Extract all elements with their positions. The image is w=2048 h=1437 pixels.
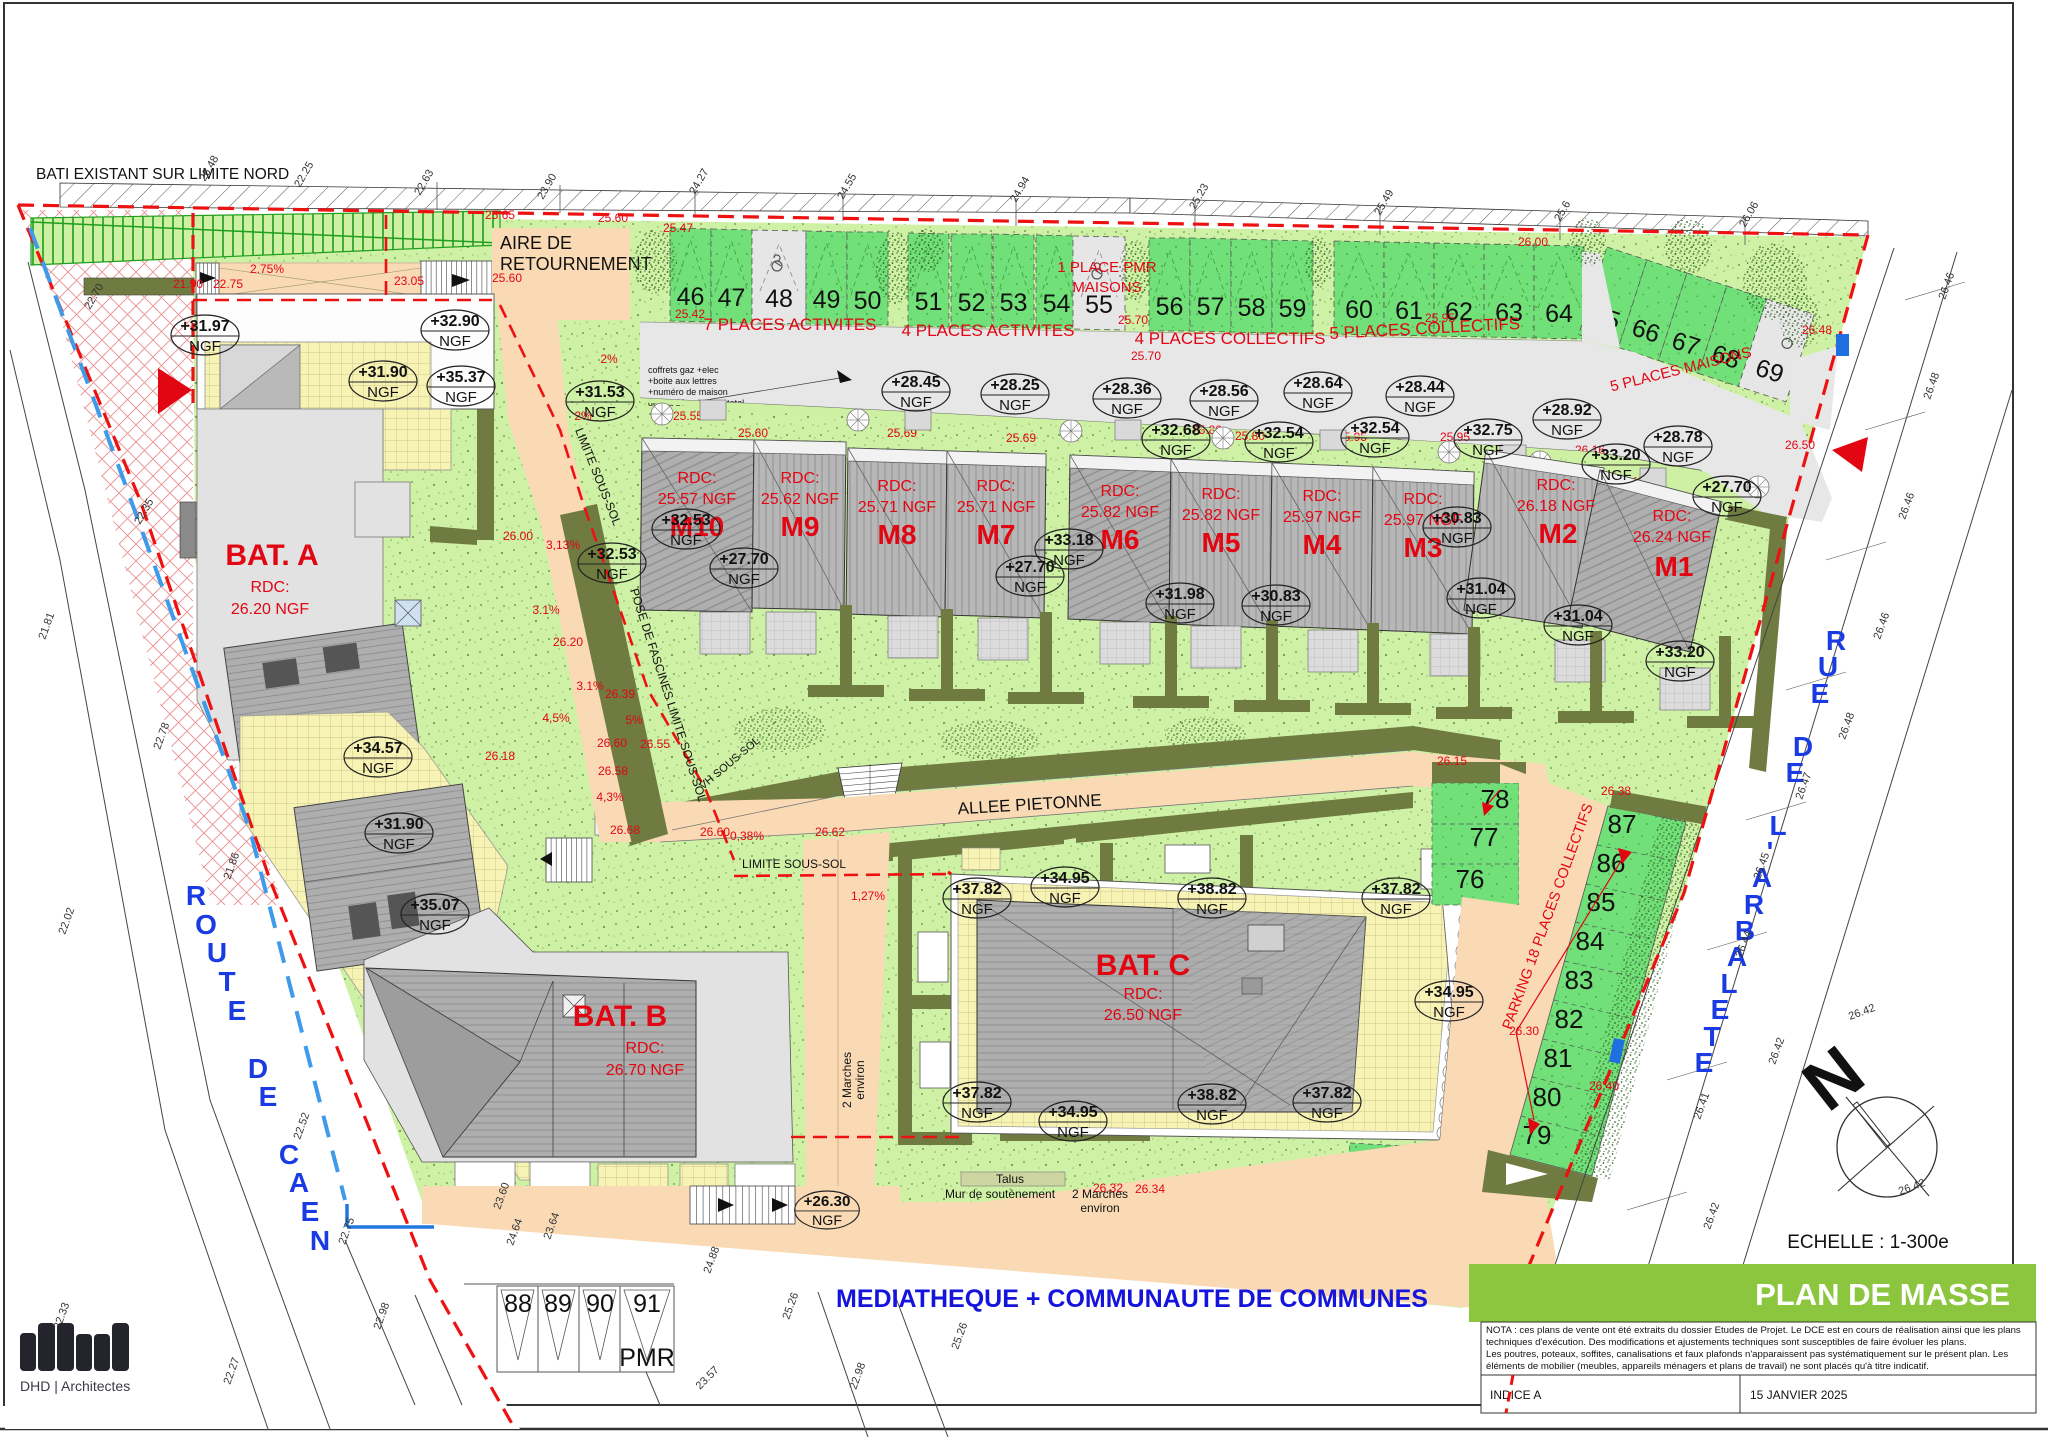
svg-text:NGF: NGF: [1433, 1004, 1465, 1021]
svg-text:NGF: NGF: [445, 389, 477, 406]
svg-text:+28.36: +28.36: [1102, 381, 1151, 398]
svg-text:NGF: NGF: [1302, 395, 1334, 412]
svg-text:RDC:: RDC:: [1201, 486, 1240, 503]
svg-text:64: 64: [1545, 300, 1573, 328]
svg-text:26.20 NGF: 26.20 NGF: [231, 601, 309, 618]
svg-text:48: 48: [765, 285, 793, 313]
svg-text:25.82 NGF: 25.82 NGF: [1081, 504, 1159, 521]
svg-text:RDC:: RDC:: [1123, 986, 1162, 1003]
svg-text:NGF: NGF: [1260, 608, 1292, 625]
svg-text:NGF: NGF: [812, 1213, 842, 1229]
svg-text:NGF: NGF: [1562, 628, 1594, 645]
svg-text:BAT. B: BAT. B: [573, 1000, 667, 1033]
svg-text:26.15: 26.15: [1437, 754, 1467, 768]
svg-text:NGF: NGF: [1049, 890, 1081, 907]
svg-text:25.57 NGF: 25.57 NGF: [658, 491, 736, 508]
svg-text:BAT. C: BAT. C: [1096, 949, 1190, 982]
svg-text:NGF: NGF: [1465, 601, 1497, 618]
svg-text:Talus: Talus: [996, 1172, 1024, 1186]
svg-text:26.24 NGF: 26.24 NGF: [1633, 529, 1711, 546]
svg-text:26.55: 26.55: [640, 737, 670, 751]
svg-text:+27.70: +27.70: [1702, 479, 1751, 496]
svg-text:3,13%: 3,13%: [546, 538, 580, 552]
svg-text:PMR: PMR: [619, 1344, 675, 1372]
svg-text:52: 52: [958, 289, 986, 317]
svg-text:NGF: NGF: [362, 760, 394, 777]
svg-text:+28.64: +28.64: [1293, 375, 1342, 392]
svg-text:techniques d'exécution. Des mo: techniques d'exécution. Des modification…: [1486, 1337, 1967, 1348]
svg-text:RDC:: RDC:: [1302, 488, 1341, 505]
svg-text:3.1%: 3.1%: [576, 679, 604, 693]
svg-text:25.70: 25.70: [1118, 313, 1148, 327]
svg-text:+34.57: +34.57: [353, 740, 402, 757]
svg-text:51: 51: [915, 288, 943, 316]
svg-text:M2: M2: [1539, 518, 1578, 549]
svg-text:+34.95: +34.95: [1048, 1104, 1097, 1121]
svg-text:+31.97: +31.97: [180, 318, 229, 335]
svg-text:N: N: [310, 1225, 330, 1256]
svg-text:25.60: 25.60: [738, 426, 768, 440]
svg-text:+28.56: +28.56: [1199, 383, 1248, 400]
svg-text:77: 77: [1470, 822, 1499, 852]
svg-text:INDICE A: INDICE A: [1490, 1388, 1541, 1402]
svg-text:2.75%: 2.75%: [250, 262, 284, 276]
svg-text:D: D: [248, 1053, 268, 1084]
svg-text:4,3%: 4,3%: [596, 790, 624, 804]
svg-text:+34.95: +34.95: [1424, 984, 1473, 1001]
svg-text:23.05: 23.05: [394, 274, 424, 288]
svg-text:M7: M7: [977, 519, 1016, 550]
svg-text:25.60: 25.60: [492, 271, 522, 285]
svg-text:+boite aux lettres: +boite aux lettres: [648, 376, 717, 386]
svg-text:25.97 NGF: 25.97 NGF: [1283, 509, 1361, 526]
svg-text:NGF: NGF: [1164, 606, 1196, 623]
svg-text:BAT. A: BAT. A: [225, 539, 318, 572]
svg-text:NGF: NGF: [1441, 530, 1473, 547]
svg-text:7 PLACES ACTIVITES: 7 PLACES ACTIVITES: [704, 315, 877, 334]
svg-text:BATI EXISTANT SUR LIMITE NORD: BATI EXISTANT SUR LIMITE NORD: [36, 166, 289, 183]
svg-text:25.69: 25.69: [1006, 431, 1036, 445]
svg-text:4 PLACES ACTIVITES: 4 PLACES ACTIVITES: [902, 321, 1075, 340]
svg-text:environ: environ: [1080, 1201, 1119, 1215]
svg-text:M6: M6: [1101, 524, 1140, 555]
svg-text:NGF: NGF: [1057, 1124, 1089, 1141]
svg-text:E: E: [301, 1196, 320, 1227]
svg-text:MEDIATHEQUE + COMMUNAUTE DE CO: MEDIATHEQUE + COMMUNAUTE DE COMMUNES: [836, 1285, 1428, 1313]
svg-text:NGF: NGF: [1160, 442, 1192, 459]
svg-text:26.18 NGF: 26.18 NGF: [1517, 498, 1595, 515]
svg-text:Les poutres, poteaux, soffites: Les poutres, poteaux, soffites, canalisa…: [1486, 1349, 2008, 1360]
svg-text:NGF: NGF: [596, 566, 628, 583]
svg-text:2 Marches: 2 Marches: [1072, 1187, 1128, 1201]
svg-text:NGF: NGF: [584, 404, 616, 421]
svg-text:RDC:: RDC:: [780, 470, 819, 487]
svg-text:NGF: NGF: [1600, 467, 1632, 484]
svg-text:+32.53: +32.53: [661, 512, 710, 529]
svg-text:+33.18: +33.18: [1044, 532, 1093, 549]
svg-text:NGF: NGF: [900, 394, 932, 411]
svg-text:NGF: NGF: [367, 384, 399, 401]
svg-text:26.00: 26.00: [503, 529, 533, 543]
svg-text:RDC:: RDC:: [250, 579, 289, 596]
svg-text:+37.82: +37.82: [1302, 1085, 1351, 1102]
svg-text:+31.90: +31.90: [374, 816, 423, 833]
svg-text:+numéro de maison: +numéro de maison: [648, 387, 728, 397]
svg-text:+32.75: +32.75: [1463, 422, 1512, 439]
svg-text:26.60: 26.60: [597, 736, 627, 750]
svg-text:53: 53: [1000, 289, 1028, 317]
svg-text:+28.44: +28.44: [1395, 379, 1444, 396]
svg-text:56: 56: [1156, 293, 1184, 321]
svg-text:85: 85: [1587, 887, 1616, 917]
svg-text:+30.83: +30.83: [1432, 510, 1481, 527]
svg-text:LIMITE SOUS-SOL: LIMITE SOUS-SOL: [742, 857, 846, 871]
svg-text:2%: 2%: [600, 352, 618, 366]
svg-text:NGF: NGF: [1359, 440, 1391, 457]
svg-text:+38.82: +38.82: [1187, 1087, 1236, 1104]
svg-text:57: 57: [1197, 293, 1225, 321]
svg-text:DHD | Architectes: DHD | Architectes: [20, 1378, 130, 1394]
svg-text:60: 60: [1345, 296, 1373, 324]
svg-text:U: U: [207, 937, 227, 968]
svg-text:O: O: [195, 909, 217, 940]
svg-text:4,5%: 4,5%: [542, 711, 570, 725]
svg-text:80: 80: [1533, 1082, 1562, 1112]
svg-text:83: 83: [1565, 965, 1594, 995]
svg-text:M4: M4: [1303, 529, 1342, 560]
svg-text:59: 59: [1279, 295, 1307, 323]
svg-text:NGF: NGF: [1311, 1105, 1343, 1122]
svg-text:+31.98: +31.98: [1155, 586, 1204, 603]
svg-text:NGF: NGF: [1196, 1107, 1228, 1124]
svg-text:26.34: 26.34: [1135, 1182, 1165, 1196]
svg-text:R: R: [186, 880, 206, 911]
svg-text:RETOURNEMENT: RETOURNEMENT: [500, 254, 652, 274]
svg-text:+37.82: +37.82: [952, 1085, 1001, 1102]
svg-text:+28.92: +28.92: [1542, 402, 1591, 419]
svg-text:58: 58: [1238, 294, 1266, 322]
svg-text:M3: M3: [1404, 532, 1443, 563]
svg-text:26.58: 26.58: [598, 764, 628, 778]
svg-text:RDC:: RDC:: [1652, 508, 1691, 525]
svg-text:NGF: NGF: [1472, 442, 1504, 459]
svg-text:47: 47: [718, 284, 746, 312]
svg-text:+28.78: +28.78: [1653, 429, 1702, 446]
svg-text:3.1%: 3.1%: [532, 603, 560, 617]
svg-text:NGF: NGF: [1208, 403, 1240, 420]
svg-text:87: 87: [1608, 809, 1637, 839]
svg-text:+31.04: +31.04: [1456, 581, 1505, 598]
svg-text:NGF: NGF: [1662, 449, 1694, 466]
svg-text:E: E: [228, 995, 247, 1026]
svg-text:MAISONS: MAISONS: [1072, 279, 1141, 296]
svg-text:NGF: NGF: [1711, 499, 1743, 516]
svg-text:+32.54: +32.54: [1350, 420, 1399, 437]
svg-text:25.71 NGF: 25.71 NGF: [858, 499, 936, 516]
svg-text:T: T: [218, 966, 235, 997]
svg-text:+33.20: +33.20: [1655, 644, 1704, 661]
svg-text:M5: M5: [1202, 527, 1241, 558]
svg-text:25.71 NGF: 25.71 NGF: [957, 499, 1035, 516]
svg-text:E: E: [1811, 678, 1830, 709]
svg-text:E: E: [1695, 1047, 1714, 1078]
svg-text:1,27%: 1,27%: [851, 889, 885, 903]
svg-text:26.39: 26.39: [605, 687, 635, 701]
svg-text:NGF: NGF: [1111, 401, 1143, 418]
svg-text:Mur de soutènement: Mur de soutènement: [945, 1187, 1056, 1201]
svg-text:RDC:: RDC:: [877, 478, 916, 495]
svg-text:RDC:: RDC:: [625, 1040, 664, 1057]
svg-text:88: 88: [504, 1290, 532, 1318]
svg-text:+30.83: +30.83: [1251, 588, 1300, 605]
svg-text:AIRE DE: AIRE DE: [500, 233, 572, 253]
svg-text:+31.90: +31.90: [358, 364, 407, 381]
svg-text:NGF: NGF: [670, 532, 702, 549]
svg-text:environ: environ: [853, 1060, 867, 1099]
svg-text:91: 91: [633, 1290, 661, 1318]
svg-text:NGF: NGF: [383, 836, 415, 853]
svg-text:26.50 NGF: 26.50 NGF: [1104, 1007, 1182, 1024]
svg-text:NGF: NGF: [999, 397, 1031, 414]
svg-text:+28.25: +28.25: [990, 377, 1039, 394]
svg-text:25.47: 25.47: [663, 221, 693, 235]
svg-text:NGF: NGF: [1196, 901, 1228, 918]
svg-text:26.68: 26.68: [610, 823, 640, 837]
svg-text:15 JANVIER 2025: 15 JANVIER 2025: [1750, 1388, 1848, 1402]
svg-text:84: 84: [1576, 926, 1605, 956]
svg-text:+31.04: +31.04: [1553, 608, 1602, 625]
svg-text:+37.82: +37.82: [952, 881, 1001, 898]
svg-text:PLAN DE MASSE: PLAN DE MASSE: [1755, 1277, 2010, 1312]
svg-text:M1: M1: [1655, 551, 1694, 582]
svg-text:NGF: NGF: [1551, 422, 1583, 439]
svg-text:+31.53: +31.53: [575, 384, 624, 401]
svg-text:A: A: [289, 1167, 309, 1198]
svg-text:NGF: NGF: [1664, 664, 1696, 681]
svg-text:+38.82: +38.82: [1187, 881, 1236, 898]
svg-text:RDC:: RDC:: [677, 470, 716, 487]
svg-text:+32.54: +32.54: [1254, 425, 1303, 442]
svg-text:+33.20: +33.20: [1591, 447, 1640, 464]
svg-text:89: 89: [544, 1290, 572, 1318]
svg-text:coffrets gaz +elec: coffrets gaz +elec: [648, 365, 719, 375]
svg-text:26.48: 26.48: [1802, 323, 1832, 337]
svg-text:25.70: 25.70: [1131, 349, 1161, 363]
svg-text:RDC:: RDC:: [1536, 477, 1575, 494]
svg-text:25.82 NGF: 25.82 NGF: [1182, 507, 1260, 524]
svg-text:NGF: NGF: [439, 333, 471, 350]
svg-text:RDC:: RDC:: [1100, 483, 1139, 500]
svg-text:21.90: 21.90: [173, 277, 203, 291]
svg-text:25.42: 25.42: [675, 307, 705, 321]
svg-text:25.55: 25.55: [673, 409, 703, 423]
svg-text:25.65: 25.65: [485, 208, 515, 222]
svg-text:+27.70: +27.70: [719, 551, 768, 568]
svg-text:+28.45: +28.45: [891, 374, 940, 391]
svg-text:RDC:: RDC:: [976, 478, 1015, 495]
svg-text:26.18: 26.18: [485, 749, 515, 763]
svg-text:82: 82: [1555, 1004, 1584, 1034]
svg-text:éléments de mobilier (meubles,: éléments de mobilier (meubles, appareils…: [1486, 1361, 1929, 1372]
svg-text:50: 50: [854, 287, 882, 315]
svg-text:54: 54: [1043, 290, 1071, 318]
svg-text:1 PLACE PMR: 1 PLACE PMR: [1057, 259, 1156, 276]
svg-text:M9: M9: [781, 511, 820, 542]
svg-text:+26.30: +26.30: [804, 1193, 851, 1210]
svg-text:2 Marches: 2 Marches: [840, 1052, 854, 1108]
svg-text:NGF: NGF: [961, 901, 993, 918]
svg-text:26.30: 26.30: [1509, 1024, 1539, 1038]
svg-text:NGF: NGF: [1380, 901, 1412, 918]
svg-text:22.75: 22.75: [213, 277, 243, 291]
svg-text:26.00: 26.00: [1518, 235, 1548, 249]
svg-text:0,38%: 0,38%: [730, 829, 764, 843]
svg-text:+37.82: +37.82: [1371, 881, 1420, 898]
svg-text:NGF: NGF: [1263, 445, 1295, 462]
svg-text:+35.37: +35.37: [436, 369, 485, 386]
svg-text:NGF: NGF: [419, 917, 451, 934]
svg-text:81: 81: [1544, 1043, 1573, 1073]
svg-text:+35.07: +35.07: [410, 897, 459, 914]
svg-text:NGF: NGF: [1404, 399, 1436, 416]
svg-text:26.70 NGF: 26.70 NGF: [606, 1062, 684, 1079]
svg-text:+27.70: +27.70: [1005, 559, 1054, 576]
svg-text:M8: M8: [878, 519, 917, 550]
svg-text:25.95: 25.95: [1425, 311, 1455, 325]
svg-text:90: 90: [586, 1290, 614, 1318]
svg-text:+32.53: +32.53: [587, 546, 636, 563]
svg-text:+34.95: +34.95: [1040, 870, 1089, 887]
svg-text:26.38: 26.38: [1601, 784, 1631, 798]
svg-text:NGF: NGF: [1014, 579, 1046, 596]
svg-text:26.20: 26.20: [553, 635, 583, 649]
svg-text:E: E: [259, 1081, 278, 1112]
svg-text:NGF: NGF: [1053, 552, 1085, 569]
svg-text:4 PLACES COLLECTIFS: 4 PLACES COLLECTIFS: [1135, 329, 1326, 348]
svg-text:NGF: NGF: [189, 338, 221, 355]
svg-text:5%: 5%: [625, 713, 643, 727]
svg-text:+32.68: +32.68: [1151, 422, 1200, 439]
svg-text:25.62 NGF: 25.62 NGF: [761, 491, 839, 508]
svg-text:NGF: NGF: [961, 1105, 993, 1122]
svg-text:NOTA : ces plans de vente ont: NOTA : ces plans de vente ont été extrai…: [1486, 1325, 2021, 1336]
svg-text:49: 49: [813, 286, 841, 314]
svg-text:C: C: [279, 1139, 299, 1170]
svg-text:ECHELLE : 1-300e: ECHELLE : 1-300e: [1787, 1232, 1949, 1253]
svg-text:RDC:: RDC:: [1403, 491, 1442, 508]
svg-text:+32.90: +32.90: [430, 313, 479, 330]
svg-text:76: 76: [1456, 864, 1485, 894]
svg-text:NGF: NGF: [728, 571, 760, 588]
